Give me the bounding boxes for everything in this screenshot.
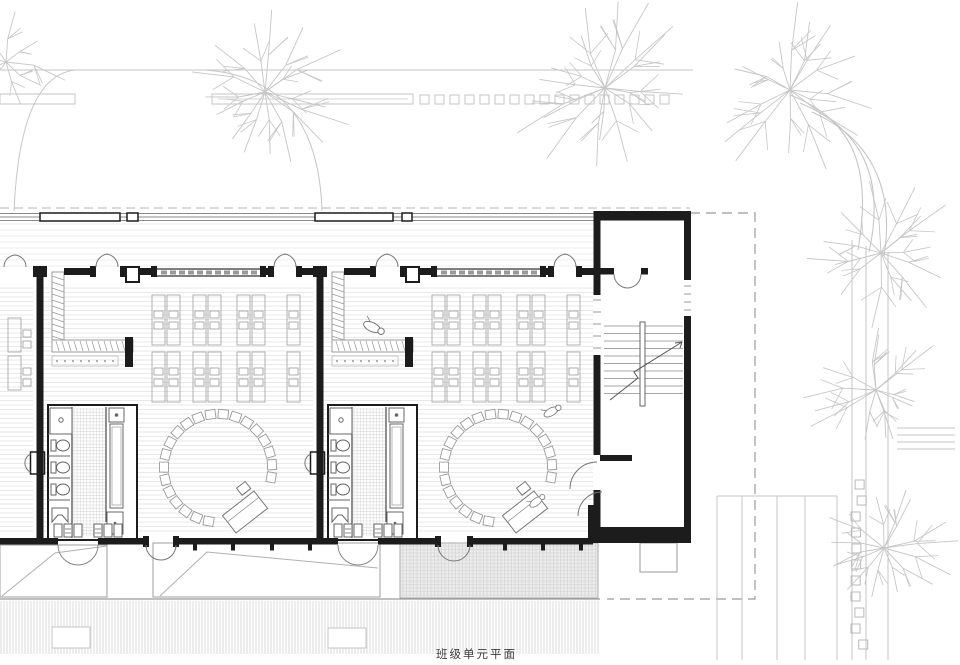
sink-counter — [50, 408, 72, 434]
toilet — [51, 462, 70, 473]
bathroom-block — [328, 405, 417, 540]
toilet — [331, 440, 350, 451]
floor-plan-sheet: 班级单元平面 — [0, 0, 960, 665]
bathtub — [110, 424, 123, 508]
caption-label: 班级单元平面 — [436, 648, 517, 661]
toilet — [51, 440, 70, 451]
floor-plan-drawing: 班级单元平面 — [0, 0, 960, 665]
terrace-middle — [153, 543, 380, 597]
terrace-west — [0, 545, 107, 597]
bathtub — [390, 424, 403, 508]
wash-basin — [389, 408, 404, 422]
toilet — [331, 462, 350, 473]
toilet — [51, 484, 70, 495]
paved-walkway-hatched — [400, 543, 598, 598]
toilet — [331, 484, 350, 495]
wash-basin — [109, 408, 124, 422]
sink-counter — [330, 408, 352, 434]
bathroom-block — [48, 405, 137, 540]
